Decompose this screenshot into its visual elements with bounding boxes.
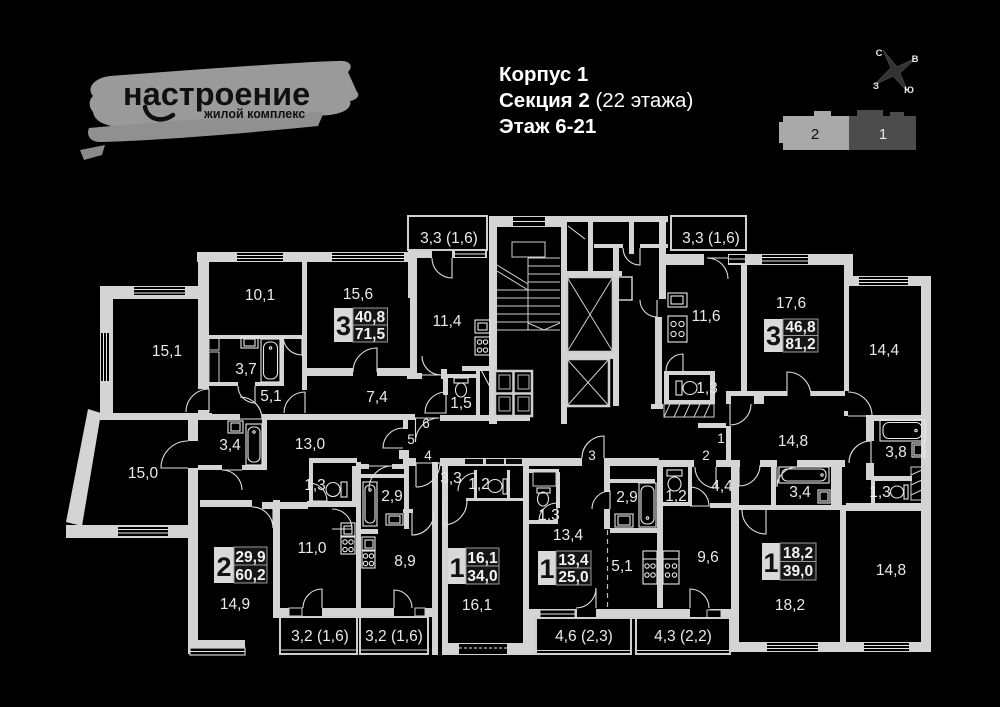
svg-text:3,8: 3,8: [885, 444, 907, 461]
svg-text:10,1: 10,1: [245, 287, 275, 304]
svg-text:1,3: 1,3: [304, 477, 326, 494]
svg-text:Секция 2 (22 этажа): Секция 2 (22 этажа): [499, 89, 693, 112]
svg-text:14,8: 14,8: [778, 433, 808, 450]
svg-text:3,4: 3,4: [219, 437, 241, 454]
svg-text:1,2: 1,2: [665, 488, 687, 505]
svg-text:13,0: 13,0: [295, 436, 326, 453]
svg-text:Ю: Ю: [904, 85, 914, 96]
svg-text:3,2 (1,6): 3,2 (1,6): [365, 628, 423, 645]
svg-text:2: 2: [811, 126, 819, 143]
svg-text:34,0: 34,0: [467, 568, 497, 585]
svg-text:Корпус 1: Корпус 1: [499, 63, 588, 86]
svg-text:3: 3: [766, 321, 781, 351]
svg-text:5,1: 5,1: [611, 558, 633, 575]
svg-text:1: 1: [539, 554, 554, 584]
svg-text:11,6: 11,6: [691, 308, 720, 325]
svg-text:46,8: 46,8: [785, 319, 816, 336]
svg-text:3: 3: [336, 311, 351, 341]
svg-text:5,1: 5,1: [260, 388, 282, 405]
svg-text:2: 2: [702, 448, 710, 463]
svg-text:4: 4: [424, 448, 432, 463]
svg-text:4,4: 4,4: [711, 478, 733, 495]
svg-text:1,3: 1,3: [869, 484, 891, 501]
svg-text:8,9: 8,9: [394, 553, 416, 570]
svg-text:71,5: 71,5: [355, 326, 386, 343]
svg-text:В: В: [912, 54, 919, 65]
svg-text:1: 1: [763, 548, 778, 578]
svg-text:1: 1: [449, 553, 464, 583]
svg-text:3: 3: [588, 448, 596, 463]
svg-text:1,5: 1,5: [450, 395, 472, 412]
svg-text:13,4: 13,4: [558, 552, 589, 569]
svg-text:29,9: 29,9: [235, 549, 266, 566]
svg-text:С: С: [876, 48, 883, 59]
svg-text:15,6: 15,6: [343, 286, 373, 303]
svg-text:18,2: 18,2: [775, 597, 805, 614]
svg-text:2: 2: [216, 552, 231, 582]
svg-text:жилой комплекс: жилой комплекс: [203, 107, 305, 121]
svg-text:2,9: 2,9: [381, 488, 403, 505]
svg-text:2,9: 2,9: [616, 489, 638, 506]
svg-text:1,3: 1,3: [696, 380, 718, 397]
svg-text:3,4: 3,4: [789, 484, 811, 501]
svg-text:3,3 (1,6): 3,3 (1,6): [420, 230, 478, 247]
svg-text:15,1: 15,1: [152, 343, 182, 360]
svg-text:15,0: 15,0: [128, 465, 159, 482]
svg-text:6: 6: [422, 416, 430, 431]
svg-text:3,3: 3,3: [440, 470, 462, 487]
svg-text:4,6 (2,3): 4,6 (2,3): [555, 628, 613, 645]
svg-text:1,3: 1,3: [538, 507, 560, 524]
svg-text:25,0: 25,0: [558, 569, 588, 586]
svg-text:9,6: 9,6: [697, 549, 719, 566]
svg-text:11,4: 11,4: [432, 313, 461, 330]
svg-text:17,6: 17,6: [776, 295, 806, 312]
svg-text:14,4: 14,4: [869, 342, 900, 359]
svg-text:1,2: 1,2: [468, 476, 490, 493]
svg-text:3,3 (1,6): 3,3 (1,6): [682, 230, 740, 247]
svg-text:1: 1: [879, 126, 887, 143]
svg-text:40,8: 40,8: [355, 309, 386, 326]
svg-text:3,2 (1,6): 3,2 (1,6): [291, 628, 349, 645]
svg-text:7,4: 7,4: [366, 389, 388, 406]
svg-text:4,3 (2,2): 4,3 (2,2): [654, 628, 712, 645]
svg-text:1: 1: [717, 431, 725, 446]
svg-text:16,1: 16,1: [462, 597, 492, 614]
svg-text:13,4: 13,4: [553, 527, 584, 544]
svg-text:14,9: 14,9: [220, 596, 250, 613]
svg-text:14,8: 14,8: [876, 562, 906, 579]
svg-text:39,0: 39,0: [783, 563, 813, 580]
svg-text:З: З: [873, 81, 879, 92]
svg-text:11,0: 11,0: [297, 540, 326, 557]
svg-text:5: 5: [407, 432, 415, 447]
svg-text:60,2: 60,2: [235, 567, 265, 584]
svg-text:3,7: 3,7: [235, 361, 257, 378]
svg-text:18,2: 18,2: [783, 545, 813, 562]
svg-text:Этаж 6-21: Этаж 6-21: [499, 115, 596, 138]
svg-text:16,1: 16,1: [467, 550, 498, 567]
svg-text:81,2: 81,2: [785, 336, 815, 353]
